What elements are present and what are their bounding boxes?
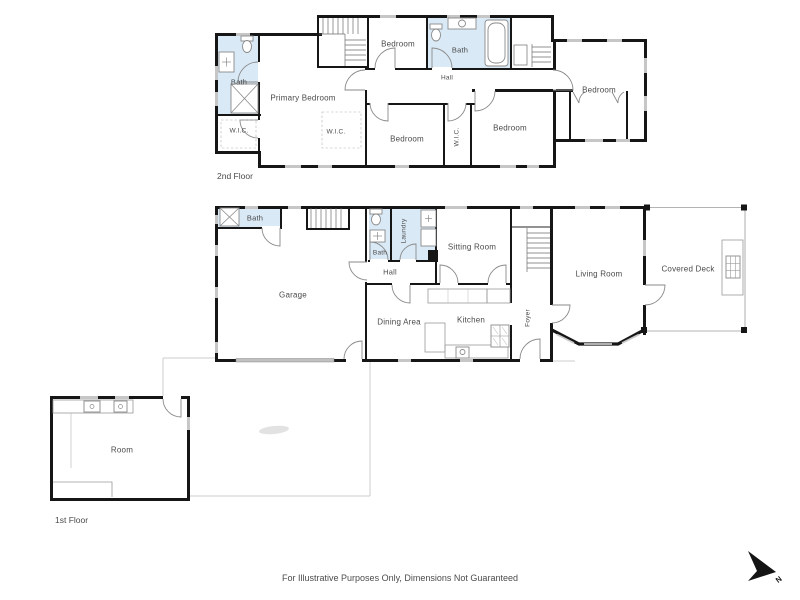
bay-window-wall	[552, 330, 644, 344]
toilet-icon	[370, 209, 382, 225]
grill-icon	[722, 240, 743, 295]
room-label-bath-1f-left: Bath	[247, 214, 263, 223]
room-label-garage: Garage	[279, 291, 307, 300]
room-label-wic-left: W.I.C.	[230, 128, 249, 135]
room-label-laundry: Laundry	[401, 219, 408, 244]
door-opening	[163, 395, 181, 400]
room-label-wic-mid: W.I.C.	[327, 129, 346, 136]
shower-icon	[231, 84, 258, 113]
vanity-sink-icon	[370, 230, 385, 242]
floor1-plan	[215, 205, 747, 363]
room-label-bedroom-top: Bedroom	[381, 40, 415, 49]
stove-icon	[491, 325, 509, 347]
disclaimer-text: For Illustrative Purposes Only, Dimensio…	[0, 573, 800, 583]
room-label-bedroom-center: Bedroom	[390, 135, 424, 144]
room-label-bedroom-far-right: Bedroom	[582, 86, 616, 95]
floorplan-page: Bath Primary Bedroom W.I.C. W.I.C. Bedro…	[0, 0, 800, 600]
room-label-hall-2f: Hall	[441, 75, 453, 82]
kitchen-sink-icon	[456, 347, 469, 358]
room-label-hall-1f: Hall	[383, 268, 397, 277]
room-label-covered-deck: Covered Deck	[661, 265, 714, 274]
room-label-bath-2f-left: Bath	[231, 78, 247, 87]
vanity-sink-icon	[448, 18, 476, 29]
room-label-foyer: Foyer	[525, 309, 532, 327]
floor2-title: 2nd Floor	[217, 171, 253, 181]
room-label-sitting-room: Sitting Room	[448, 243, 496, 252]
door-swing-icon	[163, 399, 181, 417]
floor1-title: 1st Floor	[55, 515, 88, 525]
room-label-wic-vertical: W.I.C.	[454, 128, 461, 147]
patio-outline	[163, 358, 575, 496]
vanity-sink-icon	[219, 52, 234, 72]
room-label-primary-bedroom: Primary Bedroom	[270, 94, 335, 103]
floorplan-graphic	[0, 0, 800, 600]
garage-door-icon	[236, 359, 334, 363]
room-label-room: Room	[111, 446, 133, 455]
bathtub-icon	[485, 20, 508, 66]
room-label-kitchen: Kitchen	[457, 316, 485, 325]
room-label-living-room: Living Room	[576, 270, 623, 279]
room-label-bath-2f-mid: Bath	[452, 46, 468, 55]
shower-icon	[220, 208, 239, 226]
room-label-dining-area: Dining Area	[377, 318, 421, 327]
room-label-bath-1f-mid: Bath	[373, 250, 387, 257]
room-label-bedroom-right: Bedroom	[493, 124, 527, 133]
ground-smudge	[259, 424, 290, 435]
